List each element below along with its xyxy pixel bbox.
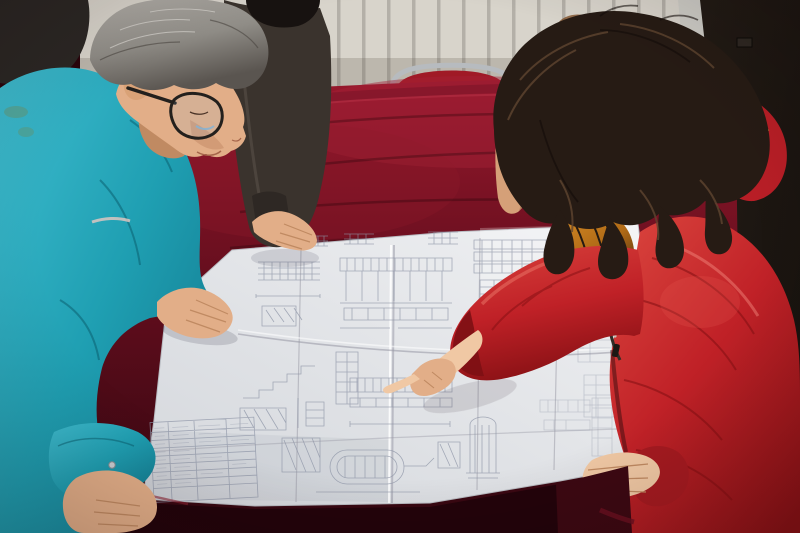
photo-canvas (0, 0, 800, 533)
photo-scene (0, 0, 800, 533)
photo-vignette (0, 0, 800, 533)
